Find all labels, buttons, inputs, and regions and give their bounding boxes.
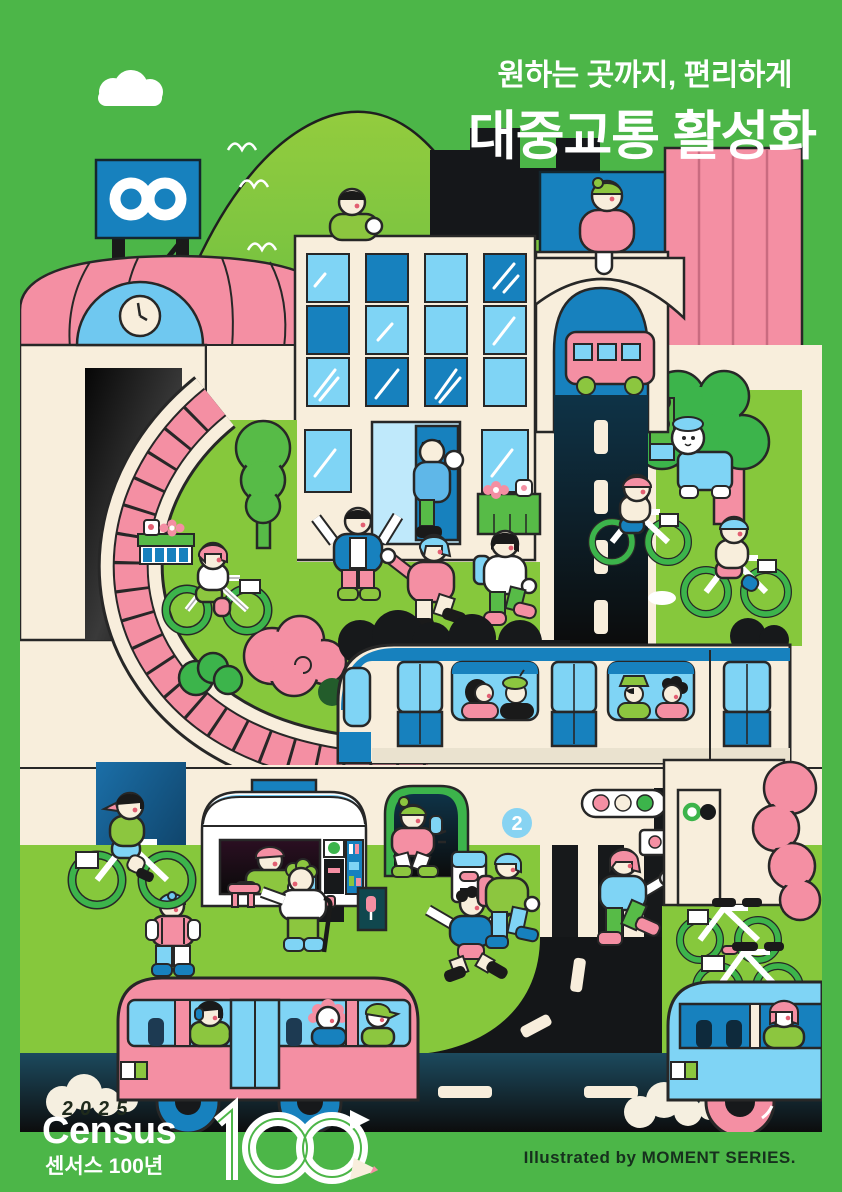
truck-shelf [324,840,363,894]
train-window-passengers [608,662,694,720]
train-door [552,662,596,746]
food-truck [202,780,366,907]
green-light-icon [637,795,653,811]
poster: 2 [0,0,842,1192]
clock-icon [120,296,160,336]
cloud-puff [648,591,676,605]
train-nose [339,732,371,762]
red-light-icon [593,795,609,811]
bus-passenger [308,999,347,1046]
poster-illustration: 2 [0,0,842,1192]
poster-title: 대중교통 활성화 [468,94,816,170]
census-logo-text: Census [42,1110,176,1153]
menu-board [358,888,386,930]
train-window-passengers [452,662,538,720]
illustration-credit: Illustrated by MOMENT SERIES. [524,1148,796,1168]
subway-train [338,645,790,763]
yellow-light-icon [615,795,631,811]
intercom-icon [685,805,699,819]
exit-number-badge: 2 [502,808,532,838]
badge-number: 2 [511,813,522,835]
train-door [724,662,770,746]
train-windshield [344,668,370,726]
bike-basket [76,852,98,868]
bus-door [231,1000,279,1088]
census-100-logo [192,1096,382,1191]
bus-driver [764,1001,804,1048]
bus-headlight [121,1062,147,1079]
train-door [398,662,442,746]
poster-subtitle: 원하는 곳까지, 편리하게 [497,50,792,94]
bike-basket [240,580,260,593]
census-korean-text: 센서스 100년 [45,1150,163,1180]
bus-headlight [671,1062,697,1079]
office-building [295,189,540,560]
